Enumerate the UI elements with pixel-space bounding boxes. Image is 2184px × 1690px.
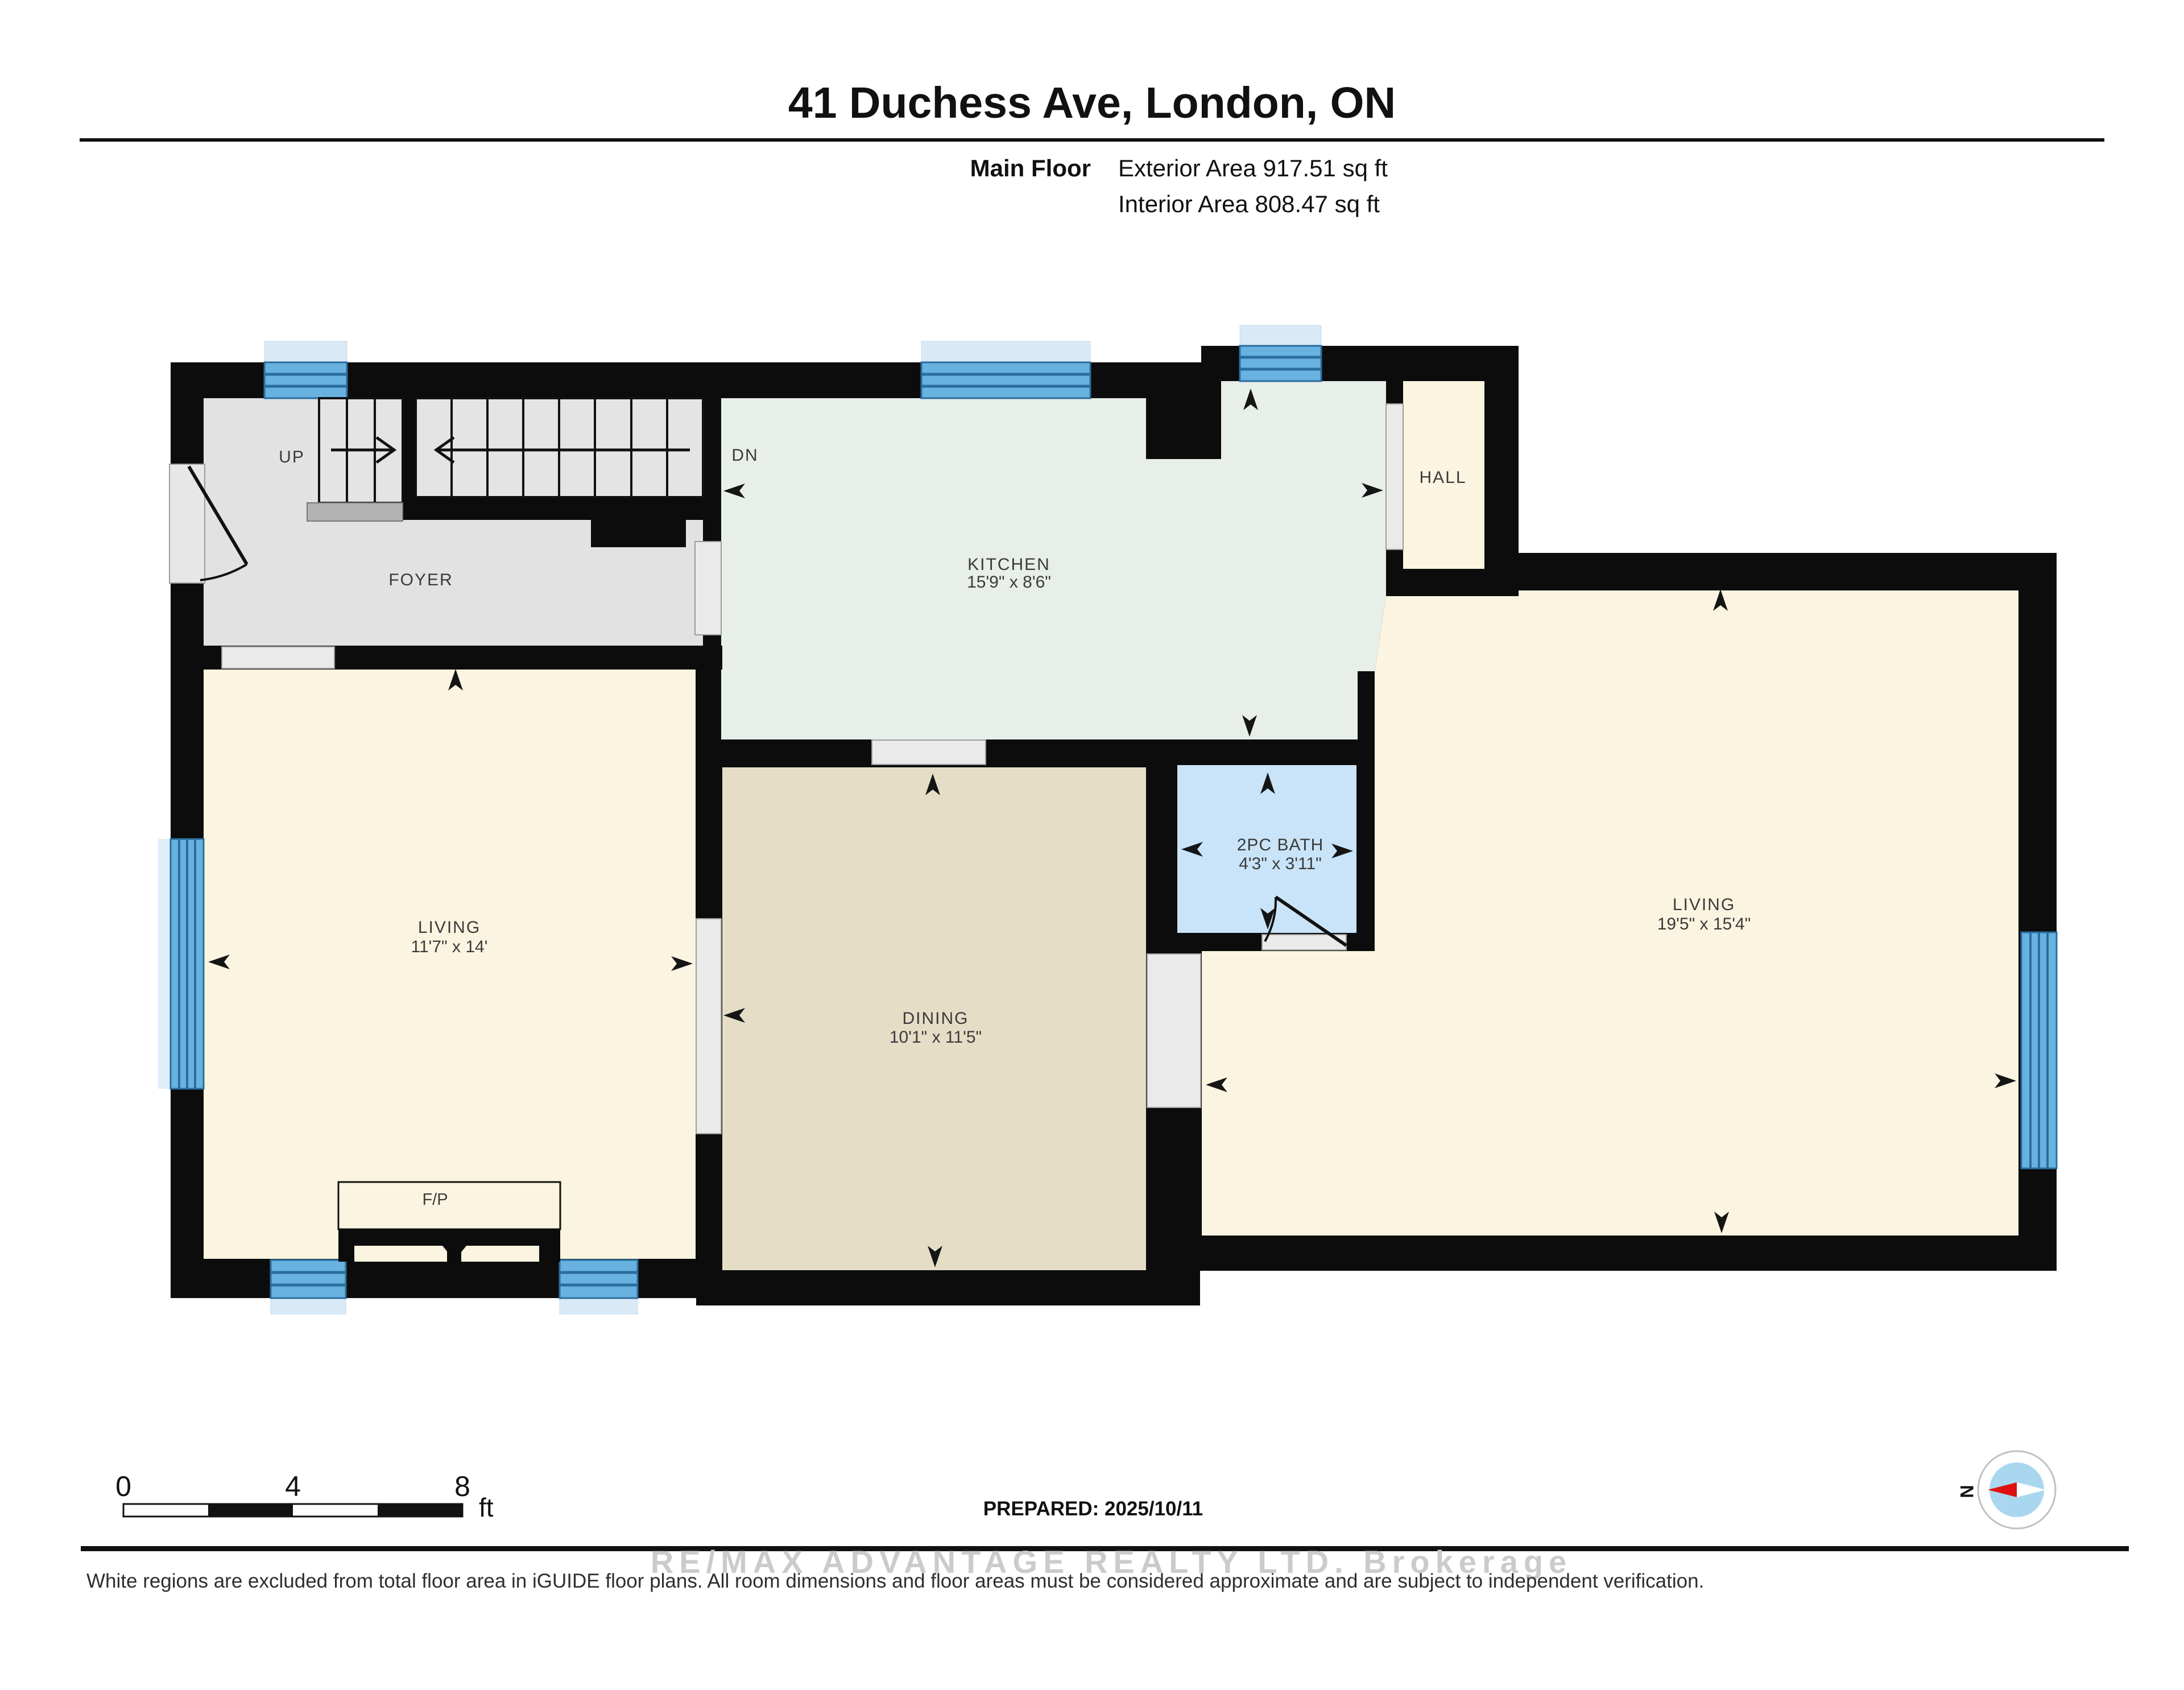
svg-text:UP: UP: [279, 448, 305, 466]
svg-text:FOYER: FOYER: [388, 571, 453, 589]
svg-text:15'9" x 8'6": 15'9" x 8'6": [967, 573, 1051, 592]
svg-text:KITCHEN: KITCHEN: [967, 555, 1050, 574]
svg-text:0: 0: [115, 1470, 131, 1502]
svg-text:41 Duchess Ave, London, ON: 41 Duchess Ave, London, ON: [788, 78, 1396, 127]
svg-text:DINING: DINING: [903, 1009, 969, 1028]
svg-text:White regions are excluded fro: White regions are excluded from total fl…: [86, 1570, 1704, 1592]
svg-text:2PC BATH: 2PC BATH: [1237, 836, 1323, 854]
svg-text:4: 4: [285, 1470, 301, 1502]
svg-text:10'1" x 11'5": 10'1" x 11'5": [890, 1028, 982, 1047]
svg-text:N: N: [1956, 1485, 1977, 1498]
svg-text:ft: ft: [479, 1493, 494, 1522]
svg-text:11'7" x 14': 11'7" x 14': [411, 937, 488, 956]
svg-text:19'5" x 15'4": 19'5" x 15'4": [1657, 915, 1751, 933]
svg-text:Main Floor: Main Floor: [970, 155, 1091, 181]
svg-text:8: 8: [454, 1470, 470, 1502]
svg-text:Exterior Area 917.51 sq ft: Exterior Area 917.51 sq ft: [1118, 155, 1388, 181]
svg-text:Interior Area 808.47 sq ft: Interior Area 808.47 sq ft: [1118, 191, 1380, 217]
svg-text:DN: DN: [731, 446, 758, 465]
svg-text:4'3" x 3'11": 4'3" x 3'11": [1239, 854, 1322, 873]
svg-text:PREPARED: 2025/10/11: PREPARED: 2025/10/11: [983, 1498, 1203, 1520]
svg-text:LIVING: LIVING: [418, 918, 481, 937]
svg-text:F/P: F/P: [422, 1191, 448, 1209]
svg-text:HALL: HALL: [1419, 468, 1466, 487]
svg-text:LIVING: LIVING: [1673, 895, 1735, 914]
